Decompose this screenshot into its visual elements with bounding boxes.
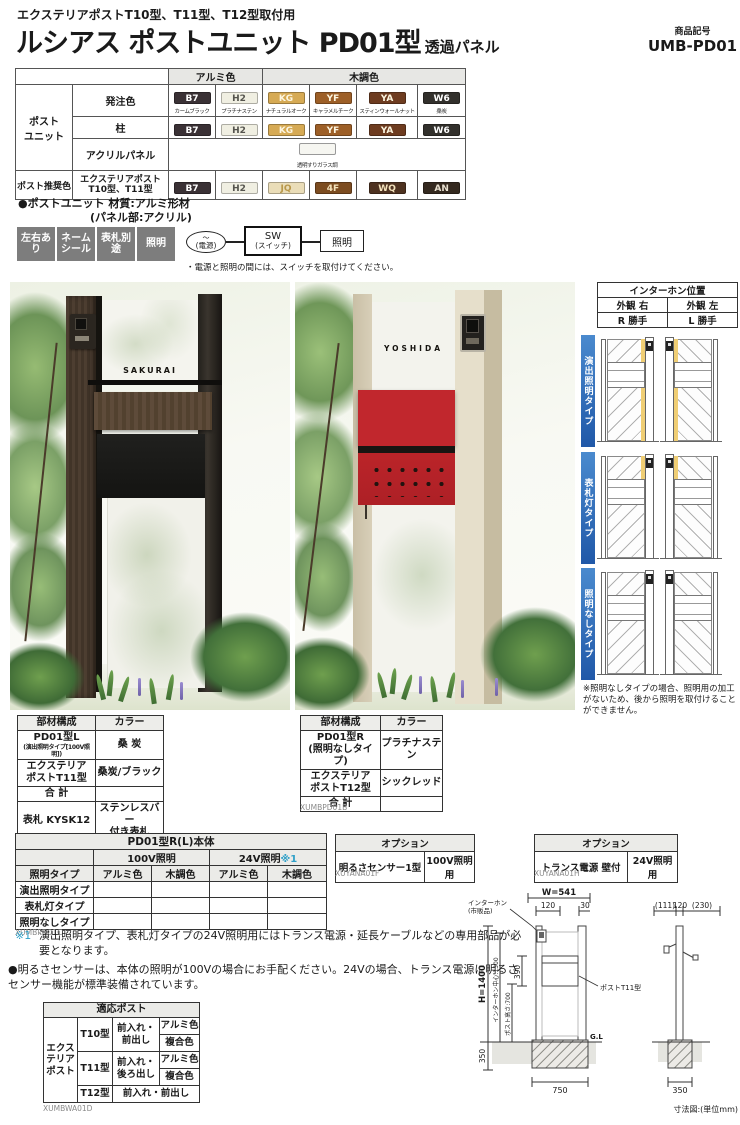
total-value <box>96 787 164 802</box>
alumi-col: アルミ色 <box>94 866 152 882</box>
badge-both-sides: 左右あり <box>17 227 55 261</box>
page-title: ルシアス ポストユニット PD01型透過パネル <box>16 21 500 60</box>
color-swatch: YA <box>369 124 406 136</box>
color-selection-table: アルミ色 木調色 ポスト ユニット 発注色 B7カームブラック H2プラチナステ… <box>15 68 466 200</box>
product-photo-left: SAKURAI <box>10 282 290 710</box>
dim-350-front: 350 <box>478 1049 487 1064</box>
dimension-drawing: W=541 120 30 インターホン (市販品) ポストT11型 H=1400… <box>432 884 740 1122</box>
color-swatch: AN <box>423 182 460 194</box>
intercom-unit <box>460 314 486 352</box>
color-swatch: B7 <box>174 92 211 104</box>
wood-color-header: 木調色 <box>263 69 466 85</box>
pillar-color-label: 柱 <box>73 117 169 139</box>
crossbar <box>88 380 222 385</box>
color-swatch: W6 <box>423 124 460 136</box>
price-cell <box>94 898 152 914</box>
option-title: オプション <box>336 835 475 852</box>
badge-nameplate-separate: 表札別途 <box>97 227 135 261</box>
wood-col: 木調色 <box>152 866 210 882</box>
color-name: スティンウォールナット <box>359 106 414 114</box>
type-label-no-lighting: 照明なしタイプ <box>581 568 595 680</box>
dim-120-side: 120 <box>673 901 688 910</box>
empty-header <box>16 850 94 866</box>
row-nameplate-light: 表札灯タイプ <box>16 898 94 914</box>
part-model: PD01型L <box>34 732 80 743</box>
model-t11: T11型 <box>78 1052 113 1086</box>
dim-750: 750 <box>552 1086 567 1095</box>
light-box: 照明 <box>320 230 364 252</box>
model-t12: T12型 <box>78 1086 113 1103</box>
page-title-suffix: 透過パネル <box>425 38 500 56</box>
page-title-text: ルシアス ポストユニット PD01型 <box>16 28 421 59</box>
acrylic-swatch <box>299 143 336 155</box>
swatch-cell: YAスティンウォールナット <box>357 85 418 117</box>
mailbox-latch <box>365 505 367 519</box>
swatch-cell: B7 <box>169 117 216 139</box>
total-label: 合 計 <box>18 787 96 802</box>
material-note-line1: ●ポストユニット 材質:アルミ形材 <box>18 197 192 211</box>
order-color-label: 発注色 <box>73 85 169 117</box>
price-cell <box>94 914 152 930</box>
switch-box: SW (スイッチ) <box>244 226 302 256</box>
dim-390: 390 <box>513 965 522 980</box>
color-name: 桑炭 <box>420 106 463 114</box>
wiring-note: ・電源と照明の間には、スイッチを取付けてください。 <box>186 261 398 273</box>
lighting-type-header: 照明タイプ <box>16 866 94 882</box>
no-lighting-note: ※照明なしタイプの場合、照明用の加工がないため、後から照明を取付けることができま… <box>583 684 737 717</box>
color-swatch: YF <box>315 92 352 104</box>
swatch-cell: H2プラチナステン <box>216 85 263 117</box>
mini-post-diagram <box>600 335 656 449</box>
wood-box <box>94 392 212 430</box>
price-cell <box>210 914 268 930</box>
v24-header: 24V照明※1 <box>210 850 327 866</box>
alumi-col: アルミ色 <box>210 866 268 882</box>
part-color: プラチナステン <box>381 731 443 770</box>
dim-120: 120 <box>541 901 556 910</box>
dim-30: 30 <box>580 901 590 910</box>
part-name: エクステリア ポストT11型 <box>18 760 96 787</box>
interphone-position-table: インターホン位置 外観 右 外観 左 R 勝手 L 勝手 <box>597 282 738 328</box>
swatch-cell: W6桑炭 <box>418 85 466 117</box>
compat-title: 適応ポスト <box>44 1003 200 1018</box>
product-code-block: 商品記号 UMB-PD01 <box>648 24 737 55</box>
option-use: 100V照明用 <box>425 852 475 883</box>
t11-color-composite: 複合色 <box>160 1069 200 1086</box>
table-code: XUMBWA01D <box>43 1104 92 1113</box>
price-cell <box>210 882 268 898</box>
price-cell <box>152 914 210 930</box>
swatch-cell: KG <box>263 117 310 139</box>
mini-post-diagram-mirrored <box>663 568 719 682</box>
color-swatch: WQ <box>369 182 406 194</box>
total-value <box>381 797 443 812</box>
model-t10: T10型 <box>78 1018 113 1052</box>
mailbox-red-lower <box>358 453 455 505</box>
swatch-cell: WQ <box>357 171 418 200</box>
color-swatch: YF <box>315 124 352 136</box>
color-header: カラー <box>381 716 443 731</box>
interphone-sublabel: (市販品) <box>468 906 493 915</box>
price-cell <box>210 898 268 914</box>
v100-header: 100V照明 <box>94 850 210 866</box>
t10-access: 前入れ・ 前出し <box>113 1018 160 1052</box>
product-code: UMB-PD01 <box>648 37 737 55</box>
parts-header: 部材構成 <box>301 716 381 731</box>
alumi-color-header: アルミ色 <box>169 69 263 85</box>
color-name: プラチナステン <box>218 106 260 114</box>
color-swatch: B7 <box>174 124 211 136</box>
post-unit-row-label: ポスト ユニット <box>16 85 73 171</box>
part-color: 桑炭/ブラック <box>96 760 164 787</box>
swatch-cell: YF <box>310 117 357 139</box>
part-color: 桑 炭 <box>96 731 164 760</box>
price-cell <box>152 882 210 898</box>
swatch-cell: W6 <box>418 117 466 139</box>
mini-post-diagram-mirrored <box>663 452 719 566</box>
option-code: XUYANA01H <box>534 869 580 878</box>
swatch-cell: YFキャラメルチーク <box>310 85 357 117</box>
dim-350-side: 350 <box>672 1086 687 1095</box>
option-code: XUYANA01F <box>335 869 379 878</box>
mini-post-diagram <box>600 568 656 682</box>
wood-col: 木調色 <box>268 866 327 882</box>
nameplate: YOSHIDA <box>372 344 455 353</box>
color-header: カラー <box>96 716 164 731</box>
type-label-stage-lighting: 演出照明タイプ <box>581 335 595 447</box>
mailbox-red-upper <box>358 390 455 446</box>
dim-230: (230) <box>692 901 712 910</box>
dim-h1400: H=1400 <box>478 965 488 1003</box>
body-price-table: PD01型R(L)本体 100V照明 24V照明※1 照明タイプ アルミ色 木調… <box>15 833 327 930</box>
mini-post-diagram-mirrored <box>663 335 719 449</box>
post-pillar-left <box>66 296 96 698</box>
swatch-cell: H2 <box>216 117 263 139</box>
option-title: オプション <box>535 835 678 852</box>
option-use: 24V照明用 <box>628 852 678 883</box>
switch-sublabel: (スイッチ) <box>255 242 291 251</box>
r-hand-cell: R 勝手 <box>598 313 668 328</box>
price-cell <box>94 882 152 898</box>
color-swatch: H2 <box>221 182 258 194</box>
swatch-cell: 4F <box>310 171 357 200</box>
interphone-title: インターホン位置 <box>598 283 738 298</box>
color-swatch: KG <box>268 92 305 104</box>
t10-color-alumi: アルミ色 <box>160 1018 200 1035</box>
v24-text: 24V照明 <box>239 854 281 865</box>
color-swatch: YA <box>369 92 406 104</box>
t11-access: 前入れ・ 後ろ出し <box>113 1052 160 1086</box>
v24-footnote-mark: ※1 <box>280 854 297 865</box>
mini-post-diagram <box>600 452 656 566</box>
swatch-cell: B7カームブラック <box>169 85 216 117</box>
mailbox-black <box>97 434 205 498</box>
color-swatch: H2 <box>221 124 258 136</box>
parts-header: 部材構成 <box>18 716 96 731</box>
product-code-label: 商品記号 <box>648 24 737 37</box>
gl-label: G.L <box>590 1033 603 1041</box>
interphone-label: インターホン <box>468 898 507 907</box>
acrylic-panel-label: アクリルパネル <box>73 139 169 171</box>
color-name: キャラメルチーク <box>312 106 354 114</box>
recommend-post-label: エクステリアポスト T10型、T11型 <box>73 171 169 200</box>
l-hand-cell: L 勝手 <box>668 313 738 328</box>
frosted-panel-top: SAKURAI <box>102 300 198 380</box>
color-name: カームブラック <box>171 106 213 114</box>
exterior-left-header: 外観 左 <box>668 298 738 313</box>
acrylic-swatch-name: 透明すりガラス調 <box>181 160 453 168</box>
t11-color-alumi: アルミ色 <box>160 1052 200 1069</box>
wiring-diagram: 〜 (電源) SW (スイッチ) 照明 <box>186 226 376 260</box>
price-cell <box>152 898 210 914</box>
type-label-nameplate-light: 表札灯タイプ <box>581 452 595 564</box>
parts-table-right: 部材構成カラー PD01型R (照明なしタイプ)プラチナステン エクステリア ポ… <box>300 715 443 812</box>
feature-badges: 左右あり ネーム シール 表札別途 照明 <box>17 227 175 261</box>
t10-color-composite: 複合色 <box>160 1035 200 1052</box>
color-swatch: 4F <box>315 182 352 194</box>
price-cell <box>268 898 327 914</box>
photo-code-right: XUMBPD01B <box>300 803 347 812</box>
intercom-unit <box>70 314 96 349</box>
compat-group: エクステリア ポスト <box>44 1018 78 1103</box>
power-label: (電源) <box>196 242 217 250</box>
badge-name-seal: ネーム シール <box>57 227 95 261</box>
price-cell <box>268 914 327 930</box>
exterior-right-header: 外観 右 <box>598 298 668 313</box>
part-model-sub: (演出照明タイプ[100V照明]) <box>18 744 95 758</box>
nameplate: SAKURAI <box>102 366 198 375</box>
badge-lighting: 照明 <box>137 227 175 261</box>
price-cell <box>268 882 327 898</box>
material-note-line2: (パネル部:アクリル) <box>18 211 192 225</box>
swatch-cell: YA <box>357 117 418 139</box>
compatible-post-table: 適応ポスト エクステリア ポスト T10型 前入れ・ 前出し アルミ色 複合色 … <box>43 1002 200 1103</box>
t12-access: 前入れ・前出し <box>113 1086 200 1103</box>
part-color: シックレッド <box>381 770 443 797</box>
swatch-cell: KGナチュラルオーク <box>263 85 310 117</box>
footnote-1-mark: ※1 <box>15 929 31 944</box>
unit-note: 寸法図:(単位mm) <box>673 1104 738 1114</box>
wire <box>302 241 320 243</box>
acrylic-swatch-cell: 透明すりガラス調 <box>169 139 466 171</box>
part-name: エクステリア ポストT12型 <box>301 770 381 797</box>
material-note: ●ポストユニット 材質:アルミ形材 (パネル部:アクリル) <box>18 197 192 225</box>
part-name: PD01型R (照明なしタイプ) <box>301 731 381 770</box>
color-swatch: H2 <box>221 92 258 104</box>
dim-w541: W=541 <box>542 888 576 898</box>
color-swatch: KG <box>268 124 305 136</box>
swatch-cell: H2 <box>216 171 263 200</box>
power-source-symbol: 〜 (電源) <box>186 231 226 253</box>
color-swatch: W6 <box>423 92 460 104</box>
row-stage-lighting: 演出照明タイプ <box>16 882 94 898</box>
dim-ic-center: インターホン中心:1300 <box>492 957 500 1022</box>
body-table-title: PD01型R(L)本体 <box>16 834 327 850</box>
color-name: ナチュラルオーク <box>265 106 307 114</box>
color-swatch: B7 <box>174 182 211 194</box>
product-photo-right: YOSHIDA <box>295 282 575 710</box>
recommend-row-label: ポスト推奨色 <box>16 171 73 200</box>
wire <box>226 241 244 243</box>
swatch-cell: B7 <box>169 171 216 200</box>
mailbox-slot <box>358 446 455 453</box>
color-swatch: JQ <box>268 182 305 194</box>
catalog-page: エクステリアポストT10型、T11型、T12型取付用 ルシアス ポストユニット … <box>0 0 740 1125</box>
part-name: PD01型L(演出照明タイプ[100V照明]) <box>18 731 96 760</box>
dim-post-height: ポスト高さ:700 <box>504 992 512 1036</box>
swatch-cell: JQ <box>263 171 310 200</box>
swatch-cell: AN <box>418 171 466 200</box>
post-t11-label: ポストT11型 <box>600 983 641 992</box>
